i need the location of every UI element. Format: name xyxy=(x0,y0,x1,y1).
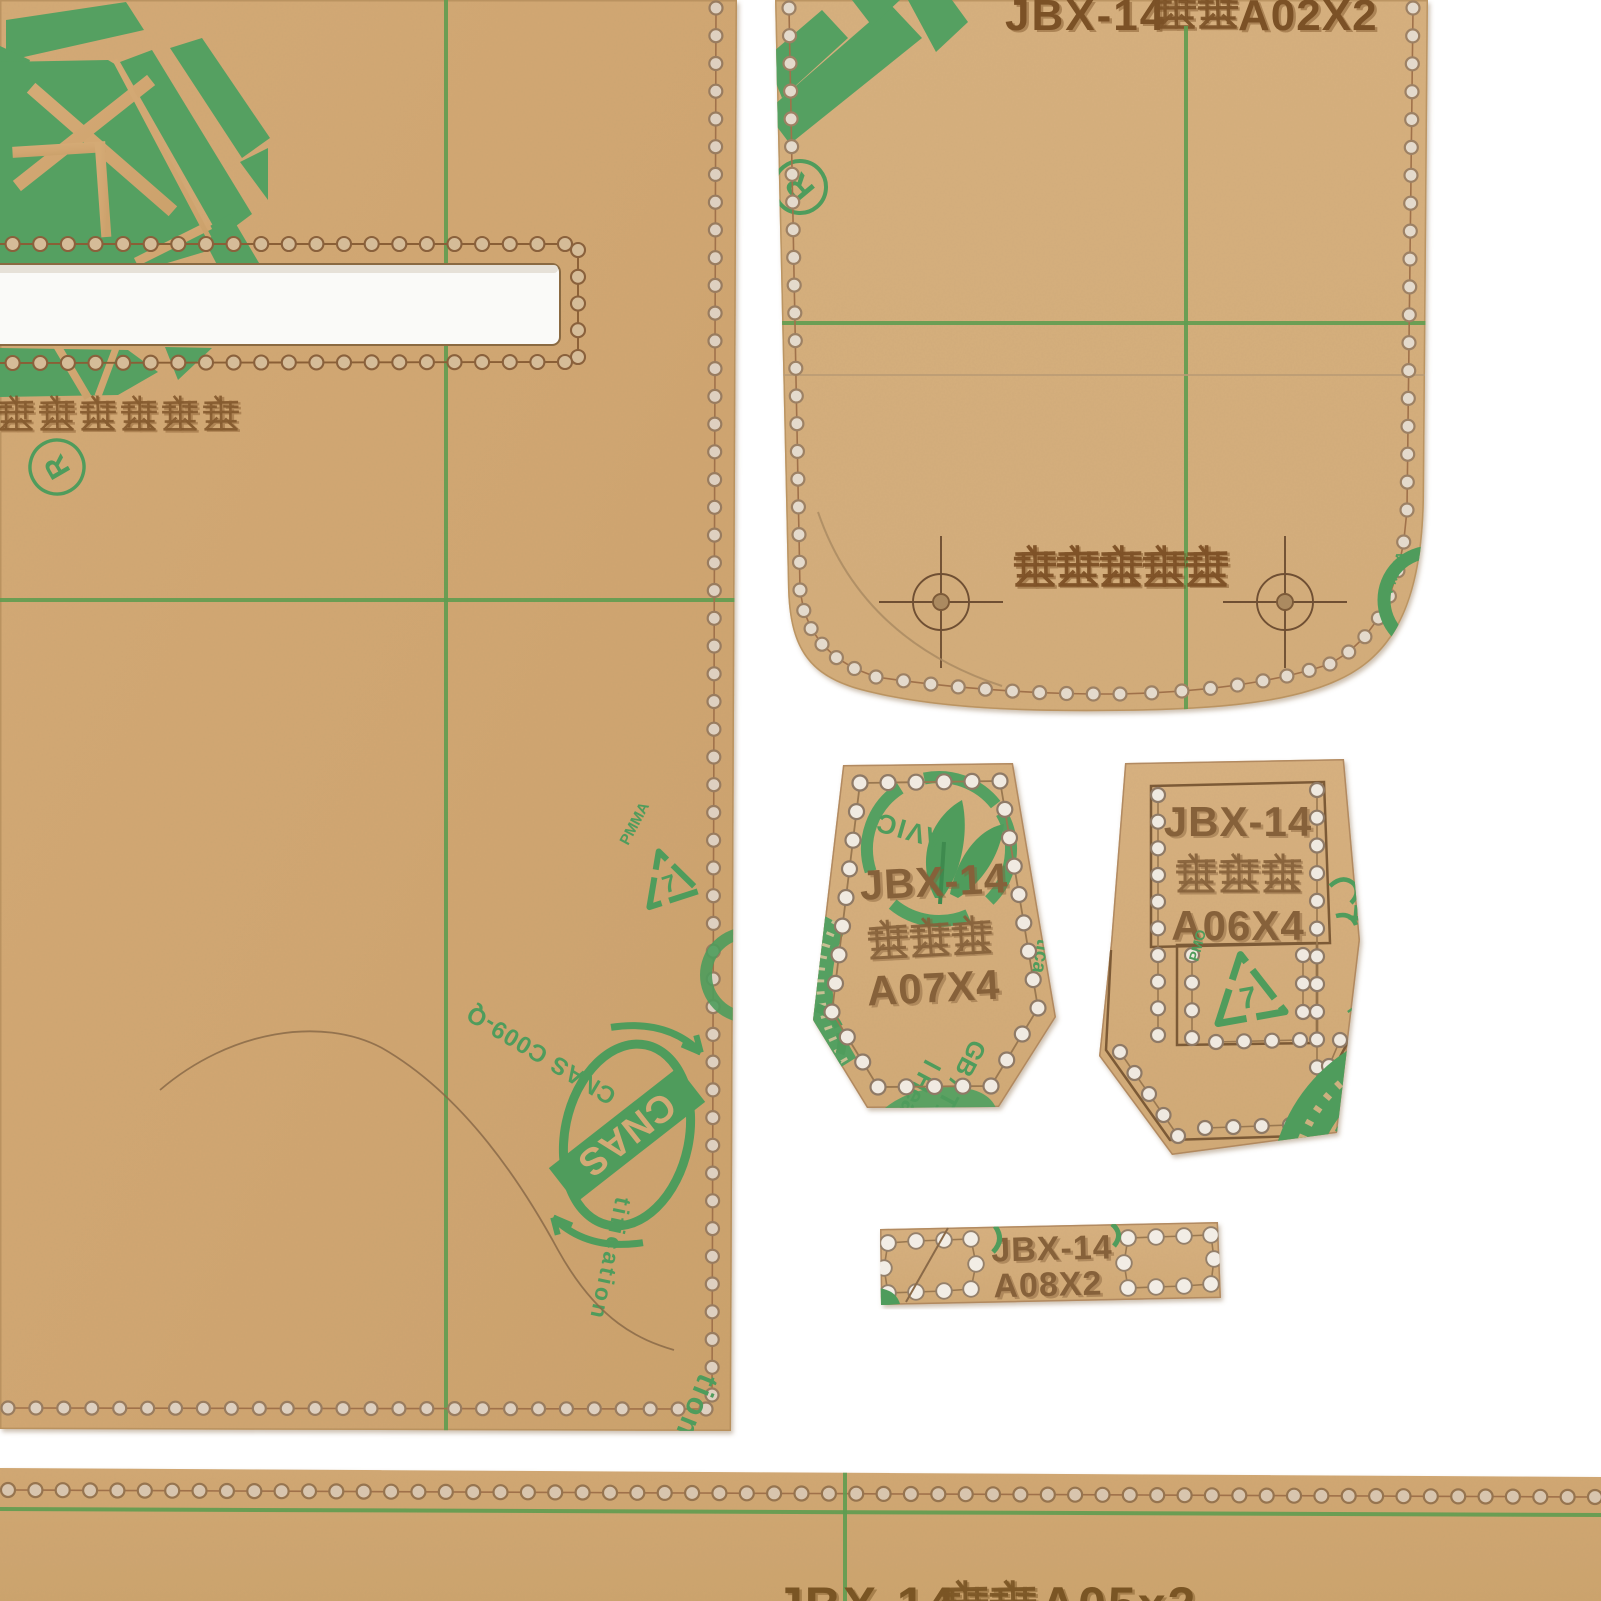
svg-text:A07X4: A07X4 xyxy=(866,961,1002,1015)
svg-text:JBX-14: JBX-14 xyxy=(1164,798,1312,845)
svg-text:A08X2: A08X2 xyxy=(993,1265,1103,1306)
svg-text:JBX-14: JBX-14 xyxy=(991,1228,1113,1269)
svg-text:JBX-14: JBX-14 xyxy=(1005,0,1166,40)
svg-text:A05x2: A05x2 xyxy=(1040,1577,1197,1601)
svg-text:JBX-14: JBX-14 xyxy=(775,1577,957,1601)
svg-text:A02X2: A02X2 xyxy=(1238,0,1378,40)
svg-text:JBX-14: JBX-14 xyxy=(858,854,1009,909)
